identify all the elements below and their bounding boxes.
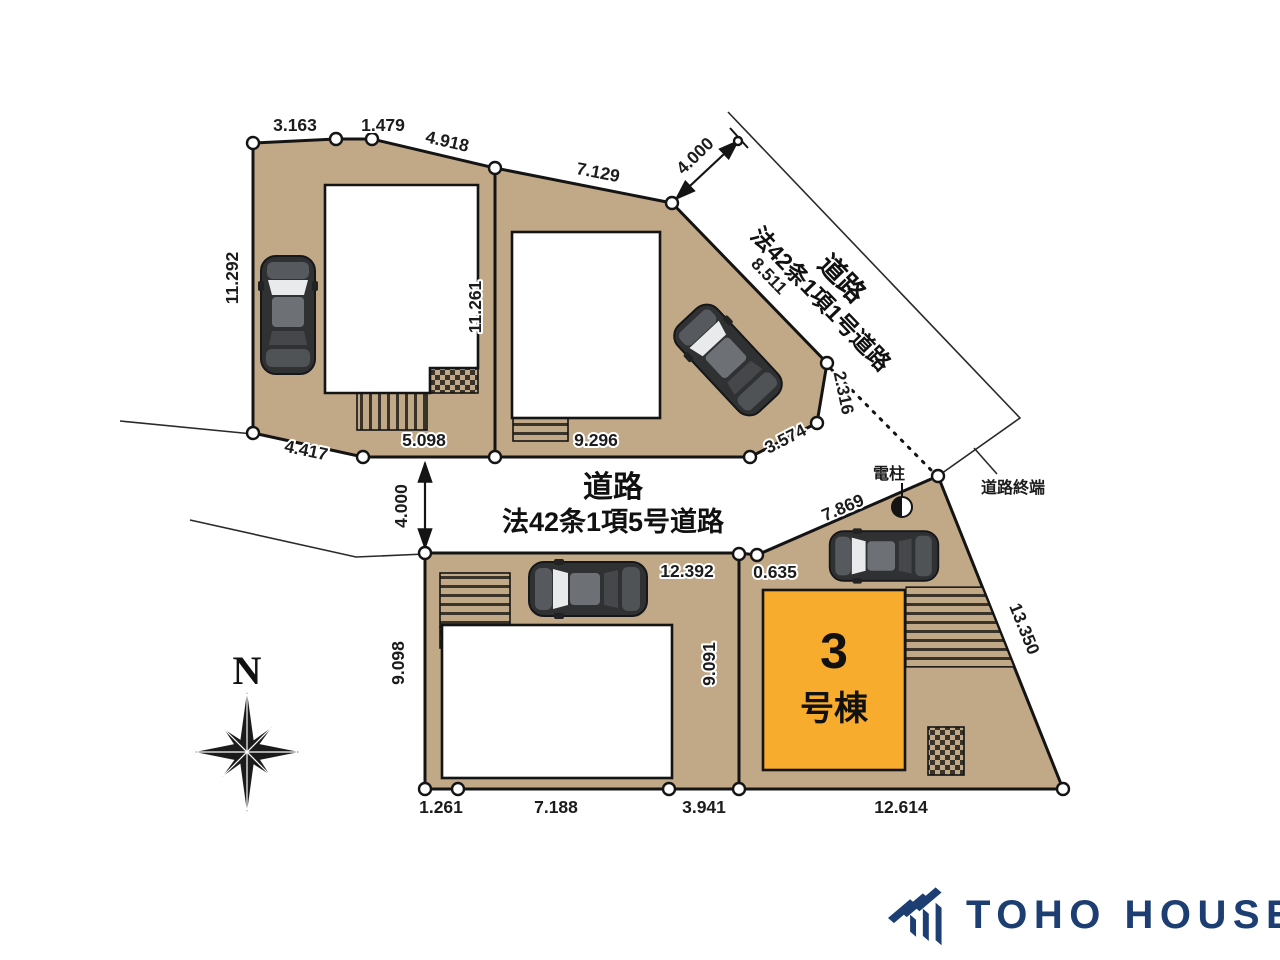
vertex (666, 197, 678, 209)
dim-lot3-bottom: 12.614 (874, 797, 928, 817)
dim-lot3-left: 9.091 (699, 642, 719, 686)
road-end-label: 道路終端 (981, 478, 1045, 497)
vertex (247, 427, 259, 439)
car-lot4 (529, 559, 647, 619)
dim-lot2-top: 7.129 (575, 158, 622, 186)
vertex (744, 451, 756, 463)
west-boundary-upper (120, 421, 253, 434)
dim-lot3-right: 13.350 (1005, 600, 1044, 657)
vertex (489, 451, 501, 463)
dim-road1-width: 4.000 (672, 133, 718, 178)
vertex (811, 417, 823, 429)
vertex (733, 783, 745, 795)
site-plan-drawing: 3 号棟 3.163 1.479 4.918 7.129 (0, 0, 1280, 960)
dim-lot2-bottom: 9.296 (574, 430, 618, 450)
north-label: N (233, 648, 262, 693)
dim-lot1-top-b: 1.479 (361, 115, 405, 135)
lot1-stairs (357, 393, 427, 430)
car-lot1 (258, 256, 318, 374)
lot2-stairs (513, 417, 568, 441)
road2-name-line2: 法42条1項5号道路 (502, 506, 725, 537)
logo-chevron-1-leg (910, 915, 916, 937)
brand-name: TOHO HOUSE (966, 893, 1280, 937)
utility-pole-label: 電柱 (873, 464, 905, 483)
site-plan-page: 3 号棟 3.163 1.479 4.918 7.129 (0, 0, 1280, 960)
building4-footprint (442, 625, 672, 778)
dim-road2-width: 4.000 (391, 484, 411, 528)
dim-lot4-bottom-a: 1.261 (419, 797, 463, 817)
car-lot3 (830, 528, 939, 583)
lot3-deck (928, 727, 964, 775)
compass-rose-icon (195, 692, 299, 812)
dim-lot4-bottom-c: 3.941 (682, 797, 726, 817)
compass-facets (197, 694, 297, 810)
vertex (1057, 783, 1069, 795)
dim-lot1-top-a: 3.163 (273, 115, 317, 135)
dim-lot1-bottom: 5.098 (402, 430, 446, 450)
dim-lot4-bottom-b: 7.188 (534, 797, 578, 817)
logo-chevron-3-leg (936, 903, 942, 946)
vertex (734, 137, 742, 145)
building3-suffix: 号棟 (800, 690, 869, 728)
dim-lot4-left: 9.098 (388, 641, 408, 685)
road-end-leader (974, 448, 997, 474)
lot1-deck (430, 368, 478, 393)
vertex (733, 548, 745, 560)
vertex (932, 470, 944, 482)
dim-lot4-top: 12.392 (660, 561, 714, 581)
vertex (247, 137, 259, 149)
building3-number: 3 (820, 623, 848, 679)
road2-name-line1: 道路 (583, 471, 644, 504)
lot3-stairs (906, 587, 1014, 667)
building1-footprint (325, 185, 478, 393)
logo-chevron-2-leg (923, 909, 929, 941)
vertex (489, 162, 501, 174)
vertex (663, 783, 675, 795)
vertex (419, 547, 431, 559)
building3-footprint (763, 590, 905, 770)
vertex (419, 783, 431, 795)
dim-lot1-left: 11.292 (222, 251, 242, 304)
lot4-stairs (440, 573, 510, 627)
dim-lot1-lot2-boundary: 11.261 (465, 280, 485, 333)
brand-footer: TOHO HOUSE (888, 887, 1280, 945)
dim-lot3-top-small: 0.635 (753, 562, 797, 582)
toho-house-logo-icon (888, 887, 942, 945)
building2-footprint (512, 232, 660, 418)
vertex (452, 783, 464, 795)
west-boundary-lower (190, 520, 425, 557)
vertex (751, 549, 763, 561)
dim-lot2-corner-a: 2.316 (830, 369, 859, 416)
vertex (357, 451, 369, 463)
vertex (821, 357, 833, 369)
vertex (330, 133, 342, 145)
